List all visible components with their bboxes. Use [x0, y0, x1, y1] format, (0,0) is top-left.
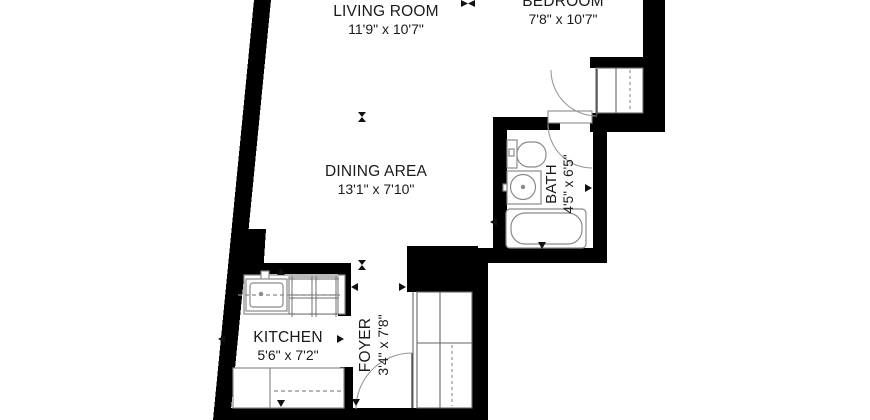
room-label-kitchen: KITCHEN 5'6" x 7'2": [253, 329, 322, 363]
room-dims: 5'6" x 7'2": [253, 347, 322, 363]
room-dims: 4'5" x 6'5": [561, 154, 577, 213]
kitchen-lower-cabinet: [233, 368, 344, 408]
room-label-bedroom: BEDROOM 7'8" x 10'7": [522, 0, 604, 27]
marker-bath-right: [585, 184, 592, 192]
bathtub: [506, 209, 586, 248]
room-dims: 11'9" x 10'7": [333, 21, 439, 37]
wall-bedroom-closet-top: [590, 57, 643, 68]
marker-passage: [358, 260, 366, 270]
room-name: KITCHEN: [253, 329, 322, 346]
wall-kitchen-top: [242, 263, 351, 274]
burner: [292, 279, 312, 295]
marker-foyer-right: [399, 283, 406, 291]
wall-bath-right: [593, 113, 607, 263]
burner: [316, 298, 336, 314]
toilet: [507, 140, 546, 168]
marker-entry: [352, 399, 360, 406]
marker-living-room: [358, 112, 366, 122]
room-dims: 13'1" x 7'10": [325, 181, 427, 197]
wall-foyer-closet-right: [472, 263, 488, 410]
wall-bottom: [216, 408, 488, 420]
room-name: FOYER: [357, 314, 374, 375]
floorplan: LIVING ROOM 11'9" x 10'7" BEDROOM 7'8" x…: [0, 0, 870, 420]
room-label-dining-area: DINING AREA 13'1" x 7'10": [325, 163, 427, 197]
room-label-living-room: LIVING ROOM 11'9" x 10'7": [333, 3, 439, 37]
room-label-bath: BATH 4'5" x 6'5": [543, 154, 577, 213]
room-name: DINING AREA: [325, 163, 427, 180]
wall-right-outer: [643, 0, 665, 132]
marker-bedroom-top: [461, 0, 475, 7]
room-dims: 3'4" x 7'8": [375, 314, 391, 375]
marker-kitchen-right: [337, 335, 344, 343]
room-name: BATH: [543, 154, 560, 213]
room-name: LIVING ROOM: [333, 3, 439, 20]
bedroom-door: [551, 69, 597, 116]
room-name: BEDROOM: [522, 0, 604, 10]
burner: [316, 279, 336, 295]
bedroom-closet: [596, 68, 643, 113]
floorplan-drawing: [0, 0, 870, 420]
burner: [292, 298, 312, 314]
stove: [289, 276, 339, 317]
foyer-closet: [413, 292, 472, 408]
wall-foyer-block: [407, 246, 478, 292]
room-label-foyer: FOYER 3'4" x 7'8": [357, 314, 391, 375]
room-dims: 7'8" x 10'7": [522, 11, 604, 27]
marker-foyer-left: [351, 283, 358, 291]
bath-sink: [503, 171, 541, 204]
